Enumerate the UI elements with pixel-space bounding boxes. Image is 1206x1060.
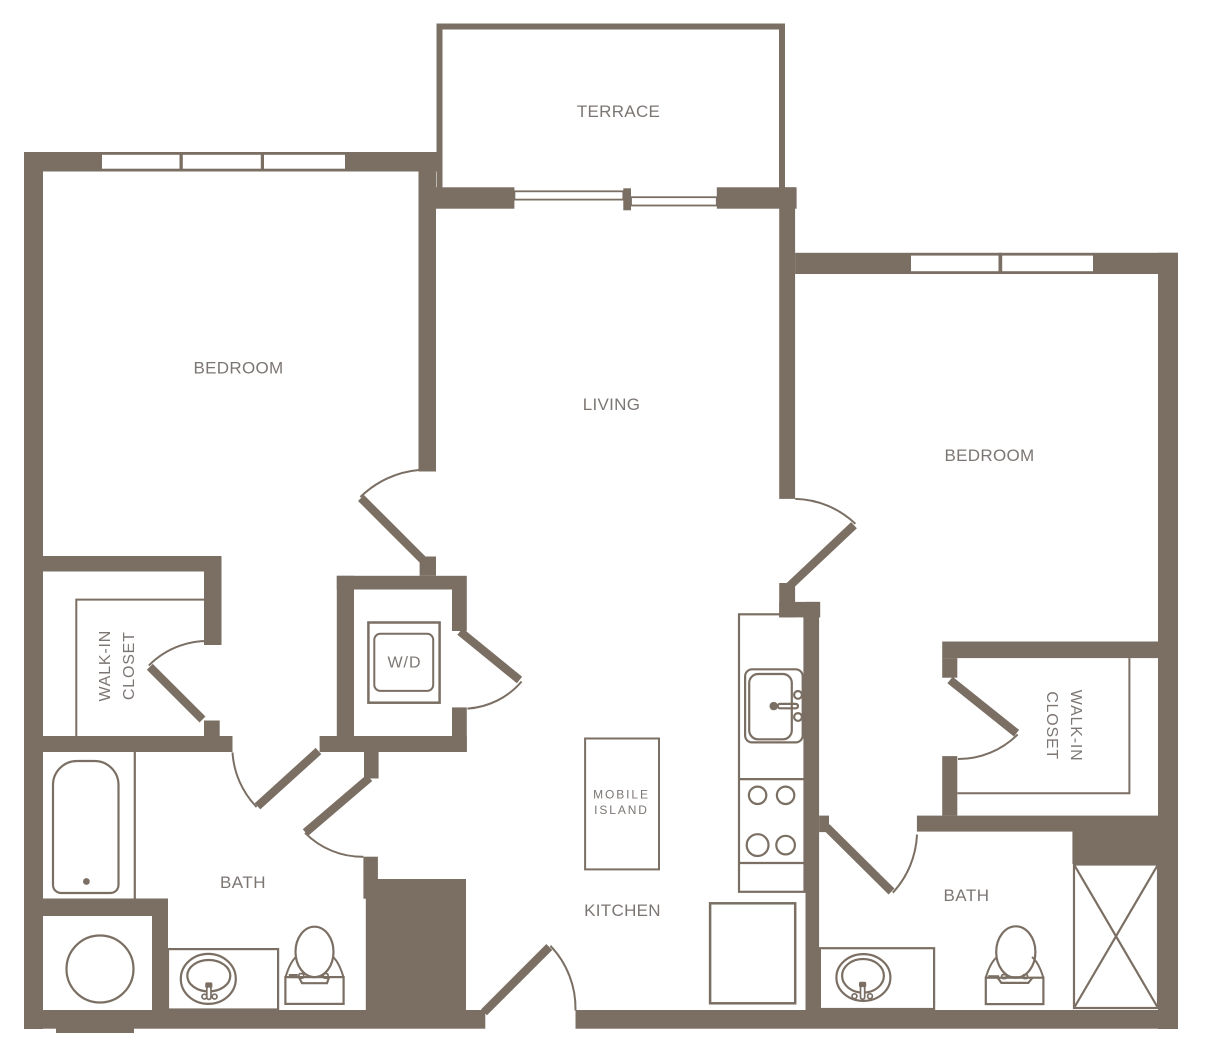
svg-text:TERRACE: TERRACE bbox=[577, 102, 660, 121]
svg-text:BEDROOM: BEDROOM bbox=[194, 359, 284, 378]
svg-text:MOBILE: MOBILE bbox=[593, 788, 650, 802]
svg-text:KITCHEN: KITCHEN bbox=[584, 901, 661, 920]
svg-text:BATH: BATH bbox=[943, 886, 989, 905]
svg-text:BEDROOM: BEDROOM bbox=[945, 446, 1035, 465]
svg-text:LIVING: LIVING bbox=[583, 395, 641, 414]
svg-text:WALK-IN: WALK-IN bbox=[1067, 690, 1084, 762]
svg-text:W/D: W/D bbox=[387, 654, 421, 671]
svg-text:BATH: BATH bbox=[220, 873, 266, 892]
svg-text:ISLAND: ISLAND bbox=[594, 803, 649, 817]
svg-text:CLOSET: CLOSET bbox=[1043, 691, 1060, 760]
svg-text:WALK-IN: WALK-IN bbox=[97, 630, 114, 702]
svg-text:CLOSET: CLOSET bbox=[121, 631, 138, 700]
